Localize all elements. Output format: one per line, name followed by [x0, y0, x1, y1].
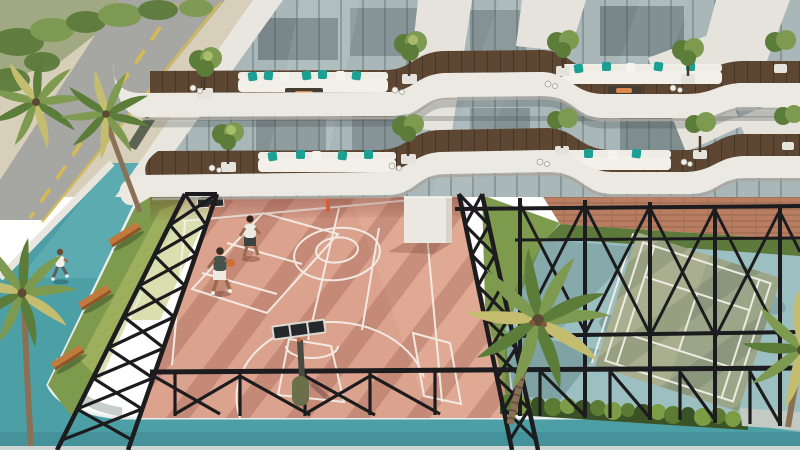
bottom-kerb [0, 446, 800, 450]
basketball [227, 259, 235, 267]
hoop-pole-pad [292, 376, 309, 406]
hoop-pole [300, 340, 302, 378]
outdoor-sofa [562, 62, 722, 84]
rendering-canvas [0, 0, 800, 450]
scene-svg [0, 0, 800, 450]
hoop-rim [297, 338, 301, 342]
outdoor-sofa [258, 150, 396, 172]
